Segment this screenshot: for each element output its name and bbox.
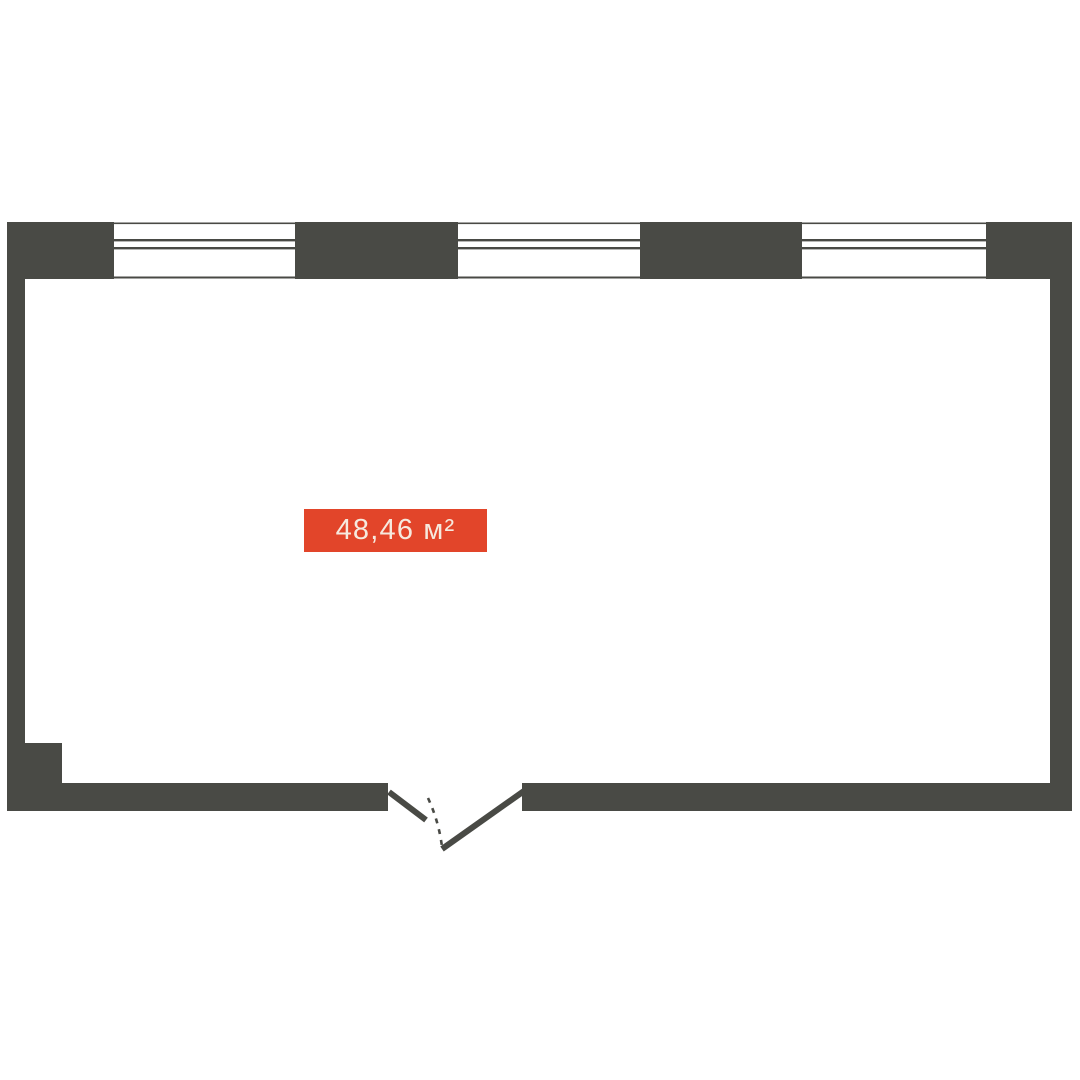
window-glass-line: [458, 239, 640, 241]
door-swing-arc: [428, 798, 442, 847]
left-wall: [7, 222, 62, 811]
area-label-text: 48,46 м²: [336, 514, 456, 547]
door-jamb-leaf: [389, 792, 426, 820]
window-outer-line: [458, 223, 640, 225]
floor-plan-canvas: 48,46 м²: [0, 0, 1080, 1080]
right-wall: [1050, 222, 1072, 811]
door-leaf: [442, 791, 524, 849]
entrance-door: [389, 791, 524, 849]
window-glass-line: [802, 247, 986, 249]
window-opening: [114, 222, 295, 279]
window-glass-line: [114, 239, 295, 241]
window-opening: [802, 222, 986, 279]
bottom-wall-left: [7, 783, 388, 811]
window-inner-line: [114, 277, 295, 279]
bottom-wall: [7, 783, 1072, 811]
floor-plan-drawing: [0, 0, 1080, 1080]
window-2: [458, 222, 640, 279]
window-inner-line: [458, 277, 640, 279]
window-1: [114, 222, 295, 279]
bottom-wall-right: [522, 783, 1072, 811]
window-inner-line: [802, 277, 986, 279]
area-label: 48,46 м²: [304, 509, 487, 552]
top-wall-pier-1: [295, 222, 458, 279]
window-3: [802, 222, 986, 279]
window-opening: [458, 222, 640, 279]
windows: [114, 222, 986, 279]
window-outer-line: [802, 223, 986, 225]
window-outer-line: [114, 223, 295, 225]
window-glass-line: [458, 247, 640, 249]
top-wall-pier-2: [640, 222, 802, 279]
left-wall-main: [7, 222, 25, 811]
window-glass-line: [114, 247, 295, 249]
window-glass-line: [802, 239, 986, 241]
